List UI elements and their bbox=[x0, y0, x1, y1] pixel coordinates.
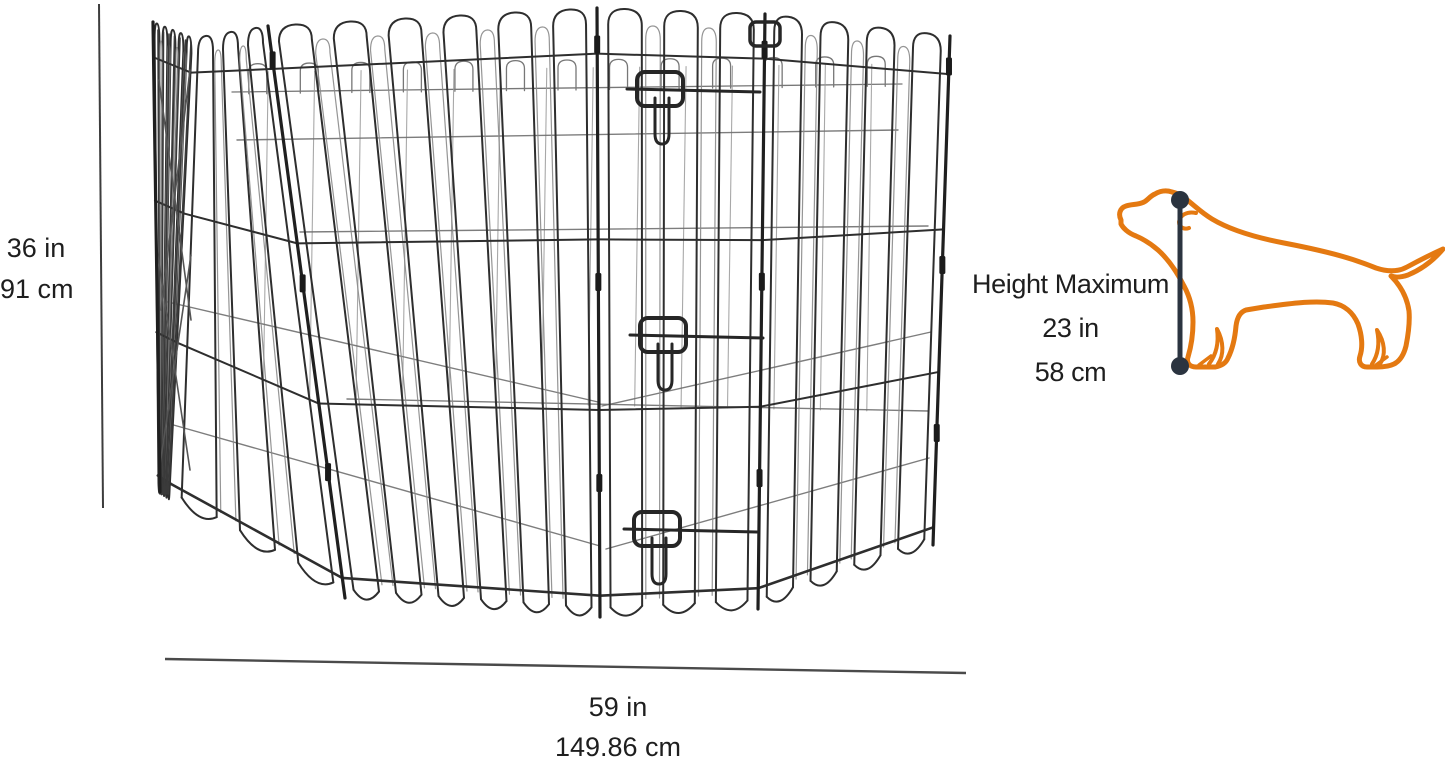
pen-width-dimension-label: 59 in 149.86 cm bbox=[418, 687, 818, 757]
dog-height-maximum-label: Height Maximum 23 in 58 cm bbox=[918, 262, 1223, 394]
exercise-pen-illustration bbox=[153, 8, 952, 617]
width-dimension-line bbox=[165, 659, 966, 673]
pen-width-inches: 59 in bbox=[418, 687, 818, 727]
door-latch-hardware bbox=[624, 22, 780, 584]
measure-line-top-dot bbox=[1171, 191, 1189, 209]
pen-height-inches: 36 in bbox=[0, 228, 72, 269]
height-dimension-line bbox=[99, 4, 103, 508]
dog-height-inches: 23 in bbox=[918, 306, 1223, 350]
dog-height-centimeters: 58 cm bbox=[918, 350, 1223, 394]
pen-height-centimeters: 91 cm bbox=[0, 269, 72, 310]
diagram-canvas bbox=[0, 0, 1445, 757]
pen-height-dimension-label: 36 in 91 cm bbox=[0, 228, 72, 310]
dog-height-title: Height Maximum bbox=[918, 262, 1223, 306]
pen-width-centimeters: 149.86 cm bbox=[418, 727, 818, 757]
product-dimension-diagram: 36 in 91 cm 59 in 149.86 cm Height Maxim… bbox=[0, 0, 1445, 757]
